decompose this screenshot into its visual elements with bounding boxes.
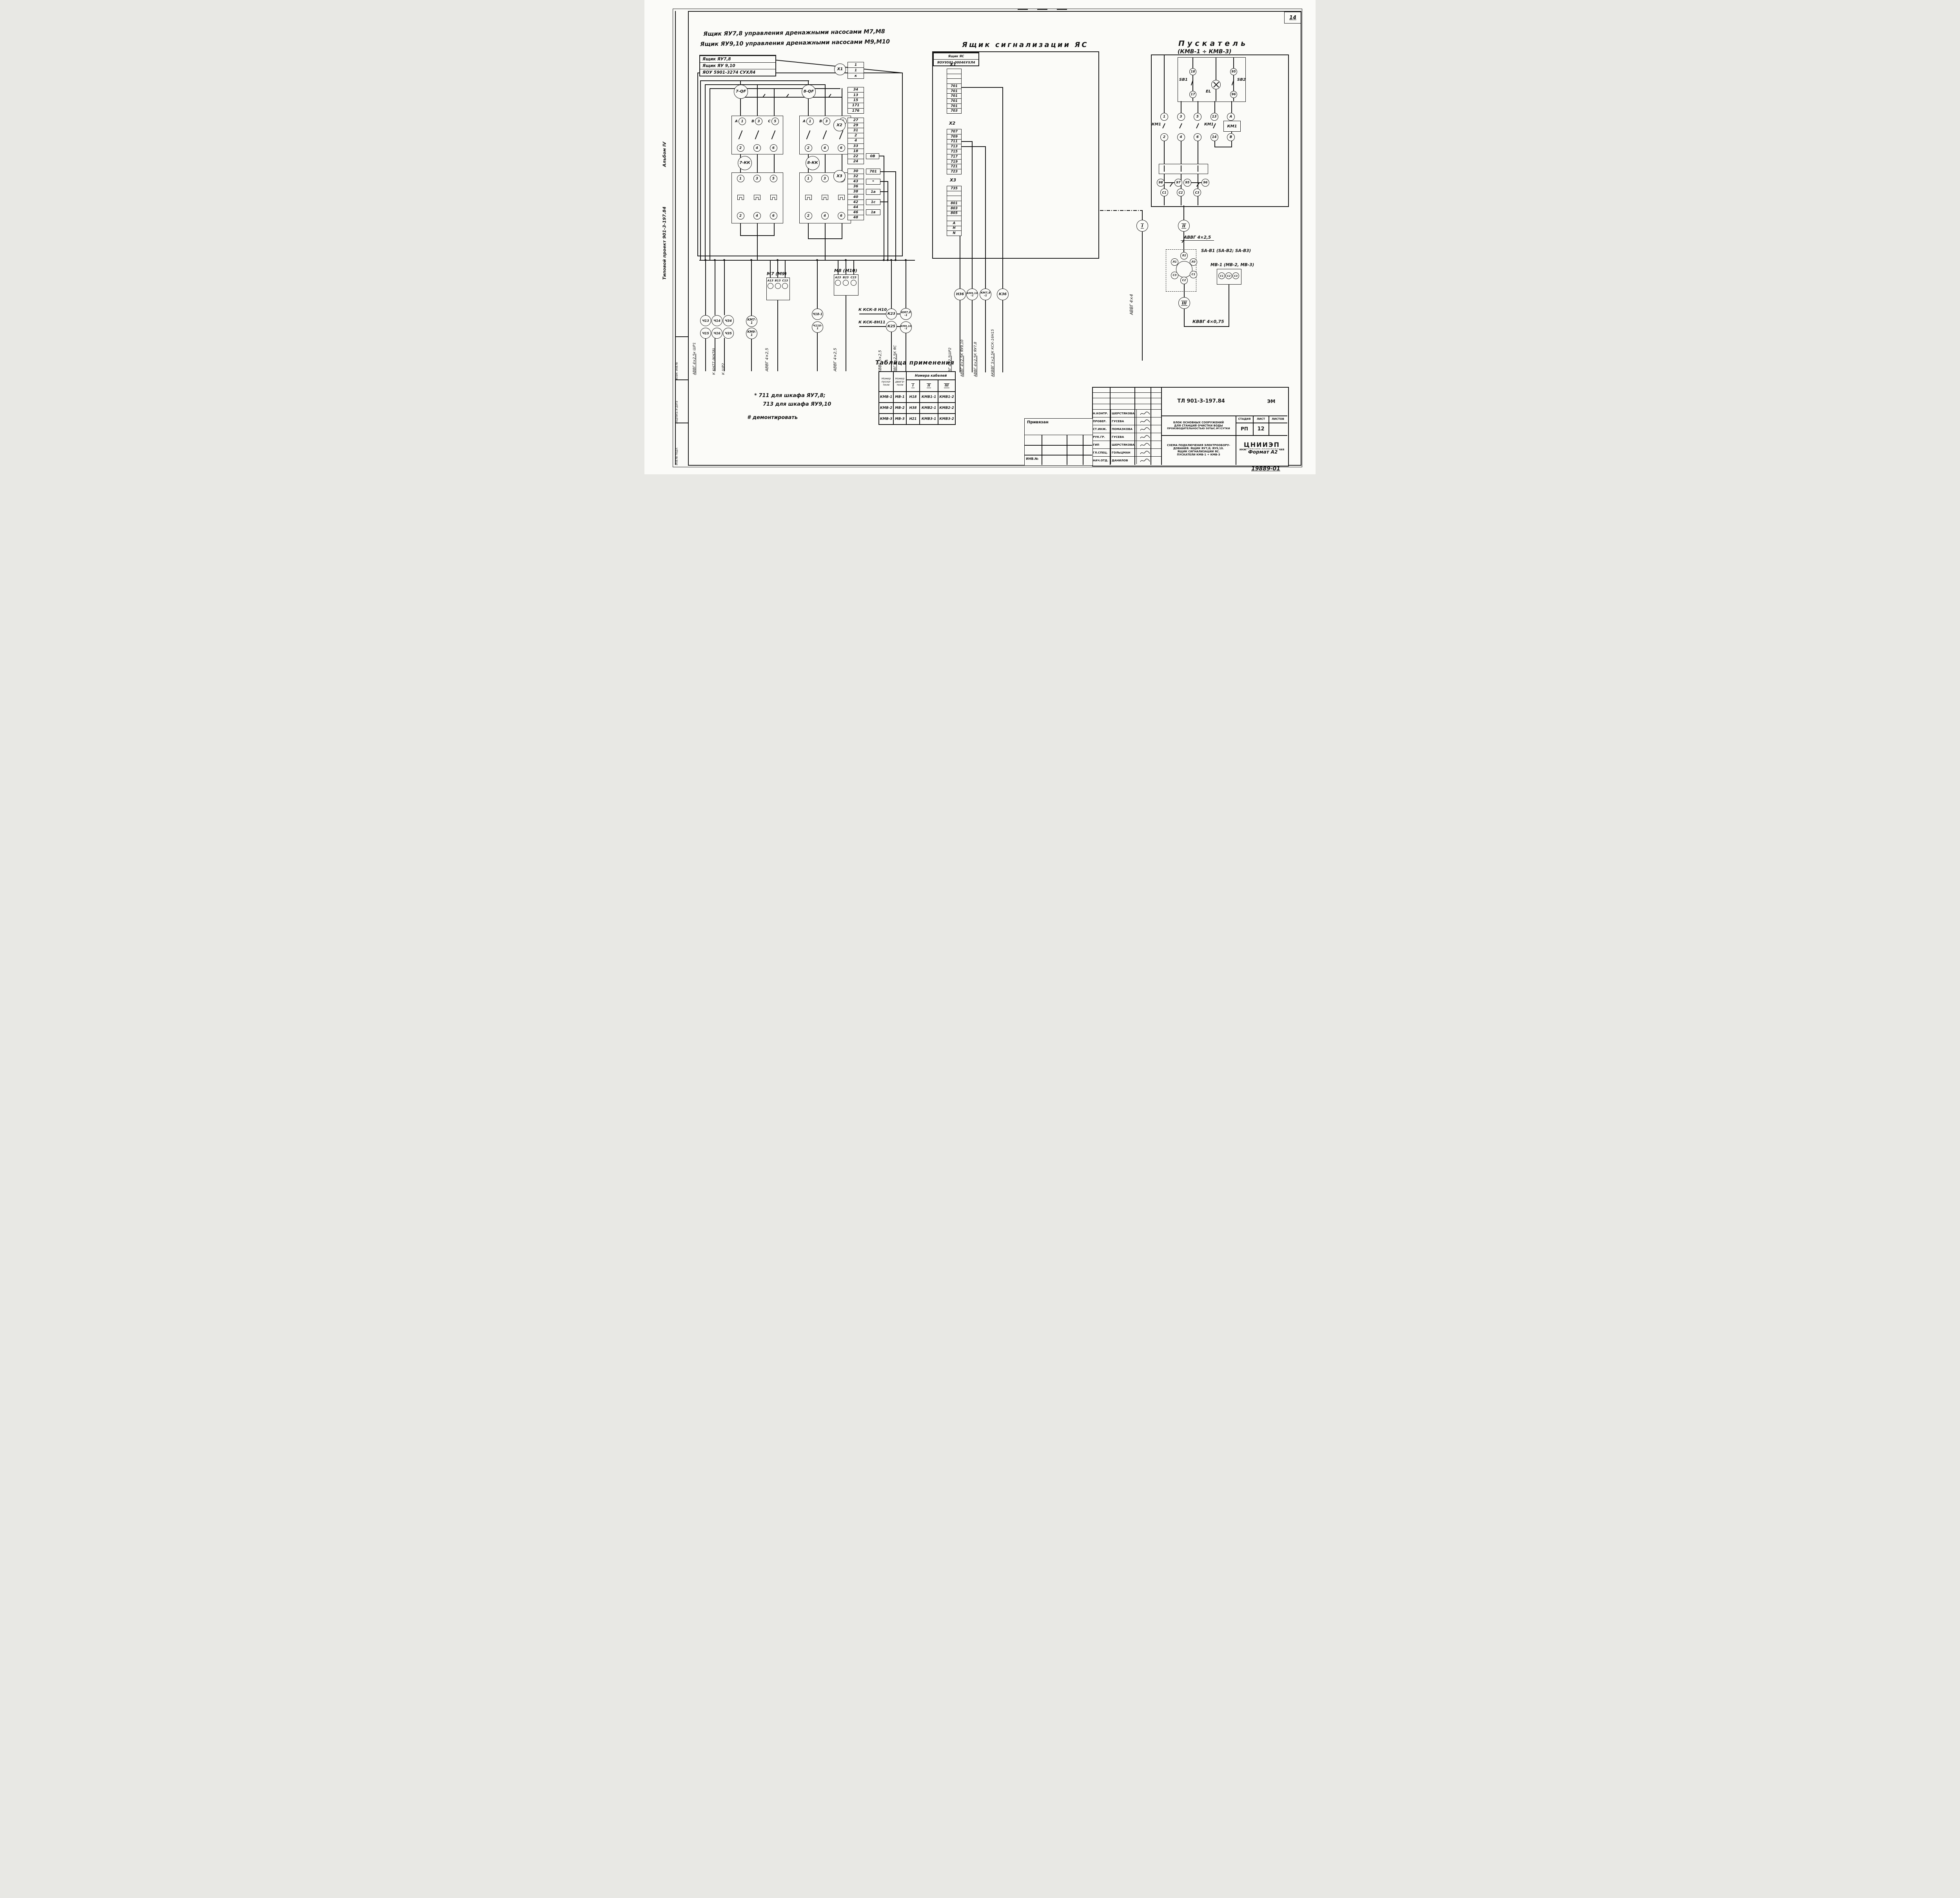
wire-marker-km910-1: КМ9,10-1 (966, 289, 978, 300)
wire-marker-km7-1: КМ7-1 (746, 316, 757, 327)
terminal-row: 32 (848, 174, 864, 179)
sa-terminal-c2: С2 (1180, 277, 1188, 284)
terminal-row: 713 (947, 144, 961, 149)
cell: КМВ2-1 (920, 403, 938, 414)
terminal-row: 805 (947, 211, 961, 216)
tb-line (1024, 445, 1092, 446)
signature (1136, 449, 1153, 456)
terminal-row: 1 (848, 67, 864, 73)
signature-scribble (1140, 411, 1151, 416)
signature-scribble (1140, 435, 1151, 439)
sub-header: II (920, 380, 938, 392)
terminal-row: 709 (947, 134, 961, 139)
motor2-label: М8 (М10) (834, 268, 857, 273)
junction-dot (723, 259, 725, 261)
role: СТ.ИНЖ. (1092, 428, 1111, 431)
name-row: Ящик ЯС (934, 53, 978, 59)
terminal: 3 (1177, 113, 1185, 121)
tag-asterisk: * (866, 179, 880, 185)
cable-label: АВВГ 4×2,5 (765, 348, 770, 372)
enclosure-dashline (1100, 210, 1142, 211)
wire-marker-k25: К25 (886, 321, 897, 332)
wire (1183, 205, 1184, 220)
table-row: КМВ-2 МВ-2 Н38 КМВ2-1 КМВ2-2 (879, 403, 955, 414)
cell: МВ-2 (893, 403, 906, 414)
cable-label: АВВГ 4×2,5К ЯУ7,8 (974, 342, 978, 377)
wire-marker-km910-1: КМ9,10-1 (900, 321, 912, 333)
signature (1136, 457, 1153, 464)
terminal (782, 283, 788, 289)
terminal: 2 (737, 144, 744, 152)
thermal-notch (1181, 165, 1181, 172)
signature-scribble (1140, 458, 1151, 463)
name: ГОЛЬЦМАН (1111, 449, 1136, 456)
terminal: 2 (737, 212, 744, 220)
terminal-label: А13 (768, 279, 773, 282)
terminal-row: 719 (947, 159, 961, 164)
junction-dot (905, 259, 907, 261)
switch-stroke (839, 130, 844, 139)
connector-x2-label: X2 (949, 121, 955, 126)
wire (859, 326, 886, 327)
thermal-notch (1164, 165, 1165, 172)
terminal-18: 18 (1189, 68, 1196, 75)
tb-line (1092, 404, 1161, 404)
breaker-7qf-columns: А1 2 В3 4 С5 6 (732, 118, 782, 152)
cell: КМВ1-2 (938, 392, 955, 403)
note-1: * 711 для шкафа ЯУ7,8; (754, 393, 826, 399)
terminal: 2 (1160, 133, 1168, 141)
name-row: Ящик ЯУ7,8 (700, 56, 775, 62)
signal-strip-x1: 701701701701701703 (947, 69, 962, 114)
cell: КМВ3-2 (938, 414, 955, 425)
terminal-row: 38 (848, 189, 864, 194)
terminal-row: 27 (848, 118, 864, 123)
terminal: 5 (771, 118, 779, 125)
cell: КМВ3-1 (920, 414, 938, 425)
page-number: 14 (1289, 15, 1296, 21)
sa-switch-label: SA-В1 (SA-В2; SA-В3) (1201, 249, 1251, 253)
terminal: 1 (805, 175, 812, 182)
heater-element-icon (737, 195, 744, 200)
wire (1142, 231, 1143, 361)
terminal-row: 42 (848, 200, 864, 205)
role: НАЧ.ОТД. (1092, 459, 1111, 462)
heater-element-icon (754, 195, 760, 200)
junction-dot (704, 259, 706, 261)
wire (1184, 326, 1229, 327)
wire-marker-row2: Ч15Ч16Ч35 (700, 328, 734, 339)
stage-value: РП (1236, 423, 1253, 435)
terminal-row: 18 (848, 149, 864, 154)
wire (1002, 299, 1003, 372)
terminal-row: 44 (848, 205, 864, 210)
cable-roman-2: II (1178, 220, 1190, 232)
wire-marker: Ч14 (711, 315, 722, 326)
table-row: КМВ-3 МВ-3 Н21 КМВ3-1 КМВ3-2 (879, 414, 955, 425)
margin-sign: Подпись и дата (675, 401, 679, 424)
terminal-label: В13 (775, 279, 780, 282)
terminal-row: 701 (947, 93, 961, 98)
format-label: Формат А2 (1247, 449, 1279, 455)
left-unit-box (697, 73, 903, 256)
strip-x3: 30324336384042444648 (848, 169, 864, 220)
role-row: Н.КОНТР. ШЕРСТЯКОВА (1092, 409, 1161, 417)
breaker-pole: С5 6 (765, 118, 782, 152)
terminal: 6 (1194, 133, 1201, 141)
terminal-98: 98 (1157, 179, 1165, 187)
margin-vzam: Взам. инв.№ (675, 362, 679, 379)
tag-0v: 0В (866, 153, 879, 159)
terminal-label: С13 (782, 279, 788, 282)
signature (1136, 410, 1153, 417)
application-table: Номер пуска­теля Номер двига­теля Номера… (878, 371, 956, 425)
terminal-row: 29 (848, 123, 864, 128)
connector-x2: X2 (833, 119, 846, 131)
cable-label: К ШР2 (722, 363, 726, 375)
km1-label: КМ1 (1152, 122, 1161, 127)
signature (1136, 425, 1153, 433)
name: ГУСЕВА (1111, 417, 1136, 425)
terminal: 13 (1210, 113, 1218, 121)
km1-label: КМ1 (1204, 122, 1214, 127)
signature (1136, 417, 1153, 425)
wire (1184, 308, 1185, 326)
wire (817, 332, 818, 371)
terminal (835, 280, 841, 286)
motor2-terms: А23 В23 С23 (834, 276, 857, 292)
signal-strip-x3: 735801803805АНN (947, 186, 962, 236)
terminal-row: N (947, 230, 961, 236)
relay-ref-8kk: 8-КК (806, 156, 820, 170)
terminal-row (947, 196, 961, 201)
col-header: Номер двига­теля (893, 372, 906, 392)
tag-1c: 1с (866, 199, 880, 205)
terminal: С1 (1160, 189, 1168, 196)
switch-stroke (771, 130, 776, 139)
terminal: 3 (755, 118, 762, 125)
terminal-row: 701 (947, 89, 961, 94)
terminal-row: 703 (947, 108, 961, 113)
motor1-label: М7 (М9) (767, 271, 787, 276)
terminal-97: 97 (1174, 179, 1182, 187)
junction-dot (750, 259, 752, 261)
switch-stroke (823, 130, 827, 139)
terminal-row (947, 191, 961, 196)
ksk1-label: К КСК-8 Н10 (858, 308, 887, 312)
connector-x3: X3 (833, 170, 846, 182)
switch-stroke (755, 130, 759, 139)
signal-strip-x2: 707709711713715717719721723 (947, 129, 962, 174)
sa-terminal-c3: С3 (1171, 272, 1178, 279)
junction-dot (890, 259, 892, 261)
role-row: НАЧ.ОТД. ДАНИЛОВ (1092, 456, 1161, 464)
terminal-row: 176 (848, 108, 864, 113)
organization: ЦНИИЭП ИНЖЕНЕРНОГО ОБОРУДОВАНИЯ Г. МОСКВ… (1236, 436, 1287, 459)
name: ДАНИЛОВ (1111, 457, 1136, 464)
strip-x1: 11к (848, 62, 864, 79)
role-row: ГИП ШЕРСТЯКОВА (1092, 441, 1161, 448)
terminal: 2 (805, 144, 812, 152)
breaker-pole: В3 4 (817, 118, 833, 152)
type-code: ЭМ (1256, 387, 1287, 416)
sa-terminal-l3: Л3 (1190, 258, 1197, 266)
motor-terminal: В13 (774, 279, 782, 295)
name: ШЕРСТЯКОВА (1111, 410, 1136, 417)
relay-7kk-columns: 1 2 3 4 5 6 (732, 175, 782, 220)
relay-pole: 1 2 (800, 175, 817, 220)
doc-number: 19889-01 (1251, 466, 1280, 472)
junction-dot (883, 259, 885, 261)
name: ГУСЕВА (1111, 433, 1136, 441)
terminal-row (947, 78, 961, 83)
terminal: 4 (753, 212, 761, 220)
terminal: С2 (1225, 272, 1232, 279)
wire-marker-k36: К36 (997, 289, 1009, 300)
inventory-number-label: ИНВ.№ (1026, 457, 1038, 461)
wire (817, 260, 818, 308)
terminal: С2 (1177, 189, 1185, 196)
junction-dot (895, 259, 897, 261)
drawing-title: СХЕМА ПОДКЛЮЧЕНИЯ ЭЛЕКТРООБОРУ- ДОВАНИЯ.… (1162, 436, 1235, 464)
col-header: Номер пуска­теля (879, 372, 893, 392)
signature-scribble (1140, 427, 1151, 432)
wire (751, 260, 752, 316)
terminal-row (947, 69, 961, 74)
terminal-row: 36 (848, 184, 864, 189)
terminal-row: 15 (848, 98, 864, 103)
app-table-title: Таблица применения (875, 359, 955, 366)
junction-dot (845, 259, 847, 261)
phase-letter: С (768, 120, 771, 123)
signal-box-title: Ящик сигнализации ЯС (962, 41, 1088, 49)
cable-roman-3: III (1178, 297, 1190, 309)
wire (777, 299, 778, 371)
starter-top-terms: 13513А (1160, 113, 1235, 121)
terminal-row: 701 (947, 98, 961, 103)
terminal-row: 707 (947, 129, 961, 134)
role: Н.КОНТР. (1092, 412, 1111, 415)
project-description: БЛОК ОСНОВНЫХ СООРУЖЕНИЙ ДЛЯ СТАНЦИЙ ОЧИ… (1162, 416, 1235, 434)
terminal: 2 (805, 212, 812, 220)
terminal-row: 33 (848, 143, 864, 149)
cable-label: КВВГ 4×0,75 (1192, 319, 1224, 324)
thermal-notch (1198, 165, 1198, 172)
cable-label: АВВГ 4×4 (1129, 294, 1134, 315)
wire (1183, 231, 1184, 252)
terminal-row: 22 (848, 154, 864, 159)
terminal-row: 715 (947, 149, 961, 154)
junction-dot (714, 259, 716, 261)
sa-terminal-l1: Л1 (1171, 258, 1178, 266)
lamp-el-icon (1211, 80, 1221, 89)
terminal-row: 717 (947, 154, 961, 159)
cable-label: АВВГ 4×2,5к ШР1 (693, 342, 697, 375)
cell: КМВ-1 (879, 392, 893, 403)
drawing-sheet: 14 Альбом IV Типовой проект 901-3-197.84… (644, 0, 1316, 474)
junction-dot (816, 259, 818, 261)
tag-1a: 1а (866, 189, 880, 195)
signature-scribble (1140, 419, 1151, 424)
wire (972, 299, 973, 372)
role-row: СТ.ИНЖ. ПОМАЗКОВА (1092, 425, 1161, 433)
wire (715, 260, 715, 315)
cell: МВ-1 (893, 392, 906, 403)
terminal: 1 (1160, 113, 1168, 121)
tag-1v: 1в (866, 209, 880, 215)
tag-701: 701 (866, 169, 880, 174)
switch-stroke (739, 130, 743, 139)
motor-terminal: А13 (767, 279, 774, 295)
starter-subtitle: (КМВ-1 ÷ КМВ-3) (1178, 49, 1231, 55)
terminal-row: 34 (848, 87, 864, 92)
terminal: 3 (823, 118, 830, 125)
tb-line (1042, 435, 1042, 465)
cable-label: АКВВГ 5×2,5К КСК-16Н15 (991, 329, 995, 377)
connector-x3-label: X3 (950, 178, 956, 183)
wire (1229, 284, 1229, 326)
role: ГЛ.СПЕЦ. (1092, 451, 1111, 454)
cell: КМВ-3 (879, 414, 893, 425)
margin-inv: Инв.№ подл. (675, 447, 679, 465)
cell: МВ-3 (893, 414, 906, 425)
terminal-row: 721 (947, 164, 961, 169)
terminal: 3 (821, 175, 829, 182)
note-3: # демонтировать (747, 415, 798, 421)
terminal (851, 280, 857, 286)
table-row: КМВ-1 МВ-1 Н18 КМВ1-1 КМВ1-2 (879, 392, 955, 403)
wire (724, 260, 725, 315)
motor-terminal: С23 (849, 276, 857, 292)
role-row: ПРОВЕР. ГУСЕВА (1092, 417, 1161, 425)
wire-marker-km78-1: КМ7,8-1 (900, 308, 912, 320)
starter-title: Пускатель (1178, 39, 1248, 48)
ksk2-label: К КСК-8Н11 (858, 320, 886, 325)
cell: Н38 (906, 403, 920, 414)
wire (985, 299, 986, 372)
terminal-row: 803 (947, 206, 961, 211)
tb-line (1067, 435, 1067, 465)
wire-marker-row1: Ч13Ч14Ч34 (700, 315, 734, 326)
motor-terminal: А23 (834, 276, 842, 292)
heater-element-icon (805, 195, 812, 200)
cable-label: АВВГ 4×2,5 (833, 348, 838, 372)
terminal-row: 735 (947, 186, 961, 191)
terminal: 6 (770, 212, 777, 220)
signature (1136, 441, 1153, 448)
connector-x1-label: X1 (950, 62, 956, 67)
col-header: Номера кабелей (906, 372, 955, 380)
signature (1136, 433, 1153, 441)
sheet-value: 12 (1253, 423, 1269, 435)
fold-mark (1057, 9, 1067, 10)
heater-element-icon (838, 195, 845, 200)
terminal: 1 (737, 175, 744, 182)
terminal: С1 (1218, 272, 1225, 279)
motor-terminal: С13 (781, 279, 789, 295)
wire (891, 260, 892, 308)
terminal-row: 48 (848, 215, 864, 220)
breaker-pole: А1 2 (732, 118, 749, 152)
junction-dot (777, 259, 779, 261)
terminal-row: 43 (848, 179, 864, 184)
starter-c-terms: С1С2С3 (1160, 189, 1201, 196)
terminal-label: А23 (835, 276, 841, 279)
tb-line (1092, 392, 1161, 393)
terminal-row: 723 (947, 169, 961, 174)
terminal: 6 (838, 212, 845, 220)
terminal-row: 30 (848, 169, 864, 174)
terminal: 4 (821, 144, 829, 152)
terminal-row: А (947, 221, 961, 226)
wire (846, 295, 846, 371)
role-row: РУК.ГР. ГУСЕВА (1092, 433, 1161, 441)
wire-marker: Ч15 (700, 328, 711, 339)
breaker-ref-7qf: 7-QF (734, 85, 748, 99)
terminal: 6 (838, 144, 845, 152)
terminal-row: 4 (848, 138, 864, 143)
stage-header: СТАДИЯ (1236, 416, 1253, 422)
terminal-row: 2 (848, 133, 864, 138)
terminal (768, 283, 773, 289)
relay-pole: 1 2 (732, 175, 749, 220)
mv-label: МВ-1 (МВ-2, МВ-3) (1210, 263, 1254, 267)
terminal-label: С23 (851, 276, 857, 279)
terminal-row (947, 216, 961, 221)
sub-header: I (906, 380, 920, 392)
privyazan-box: Привязан (1024, 418, 1093, 435)
connector-x1: X1 (834, 64, 846, 75)
signature-scribble (1140, 450, 1151, 455)
terminal-row: 40 (848, 194, 864, 199)
terminal-95b: 95 (1183, 179, 1191, 187)
cell: КМВ2-2 (938, 403, 955, 414)
fold-mark (1037, 9, 1047, 10)
cell: Н21 (906, 414, 920, 425)
terminal (775, 283, 781, 289)
terminal: 3 (753, 175, 761, 182)
terminal: С3 (1193, 189, 1201, 196)
terminal (843, 280, 849, 286)
junction-dot (887, 259, 889, 261)
heater-element-icon (770, 195, 777, 200)
wire (705, 338, 706, 371)
terminal-label: В23 (843, 276, 849, 279)
cable-label: К КН77 (КН78) (712, 348, 717, 375)
role-row: ГЛ.СПЕЦ. ГОЛЬЦМАН (1092, 448, 1161, 456)
wire (751, 338, 752, 371)
breaker-pole: В3 4 (749, 118, 765, 152)
thermal-bar (1159, 164, 1208, 174)
roles-table: Н.КОНТР. ШЕРСТЯКОВА ПРОВЕР. ГУСЕВА СТ.ИН… (1092, 409, 1161, 464)
wire (859, 314, 886, 314)
sb1-label: SB1 (1179, 78, 1188, 82)
terminal: 5 (1194, 113, 1201, 121)
wire-marker: Ч16 (711, 328, 722, 339)
tb-line (1092, 398, 1161, 398)
breaker-pole: А1 2 (800, 118, 817, 152)
starter-bottom-terms: 24614В (1160, 133, 1235, 141)
wire-marker-km78-1: КМ7,8-1 (980, 289, 991, 300)
breaker-ref-8qf: 8-QF (802, 85, 816, 99)
terminal-96b: 96 (1201, 179, 1209, 187)
tb-line (1024, 455, 1092, 455)
phase-letter: А (735, 120, 738, 123)
role: ПРОВЕР. (1092, 420, 1111, 423)
sheet-header: ЛИСТ (1253, 416, 1269, 422)
wire-marker: Ч34 (723, 315, 734, 326)
cell: Н18 (906, 392, 920, 403)
